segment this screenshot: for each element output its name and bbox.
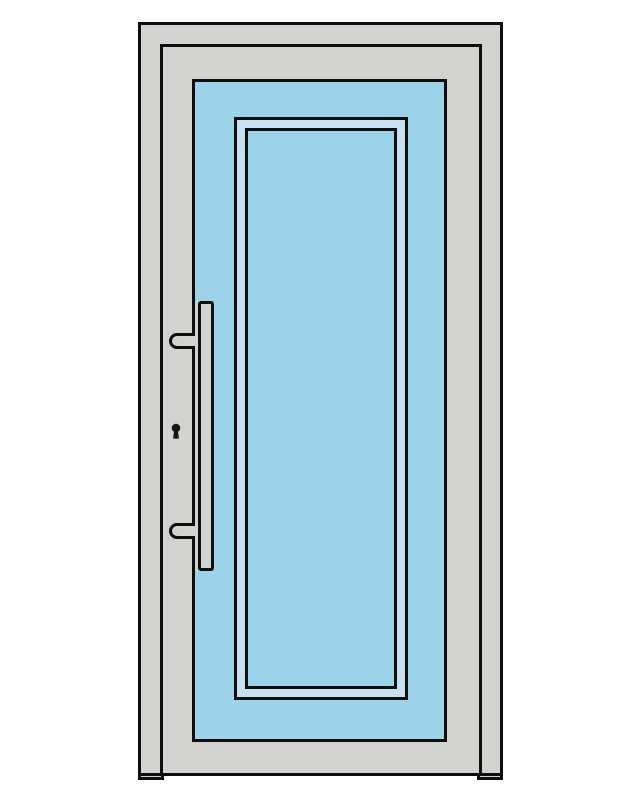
keyhole-icon: [169, 422, 183, 442]
handle-bar: [198, 301, 214, 571]
door-illustration: [0, 0, 642, 800]
glazing-pane: [245, 128, 397, 689]
glazing-frame: [234, 117, 408, 700]
